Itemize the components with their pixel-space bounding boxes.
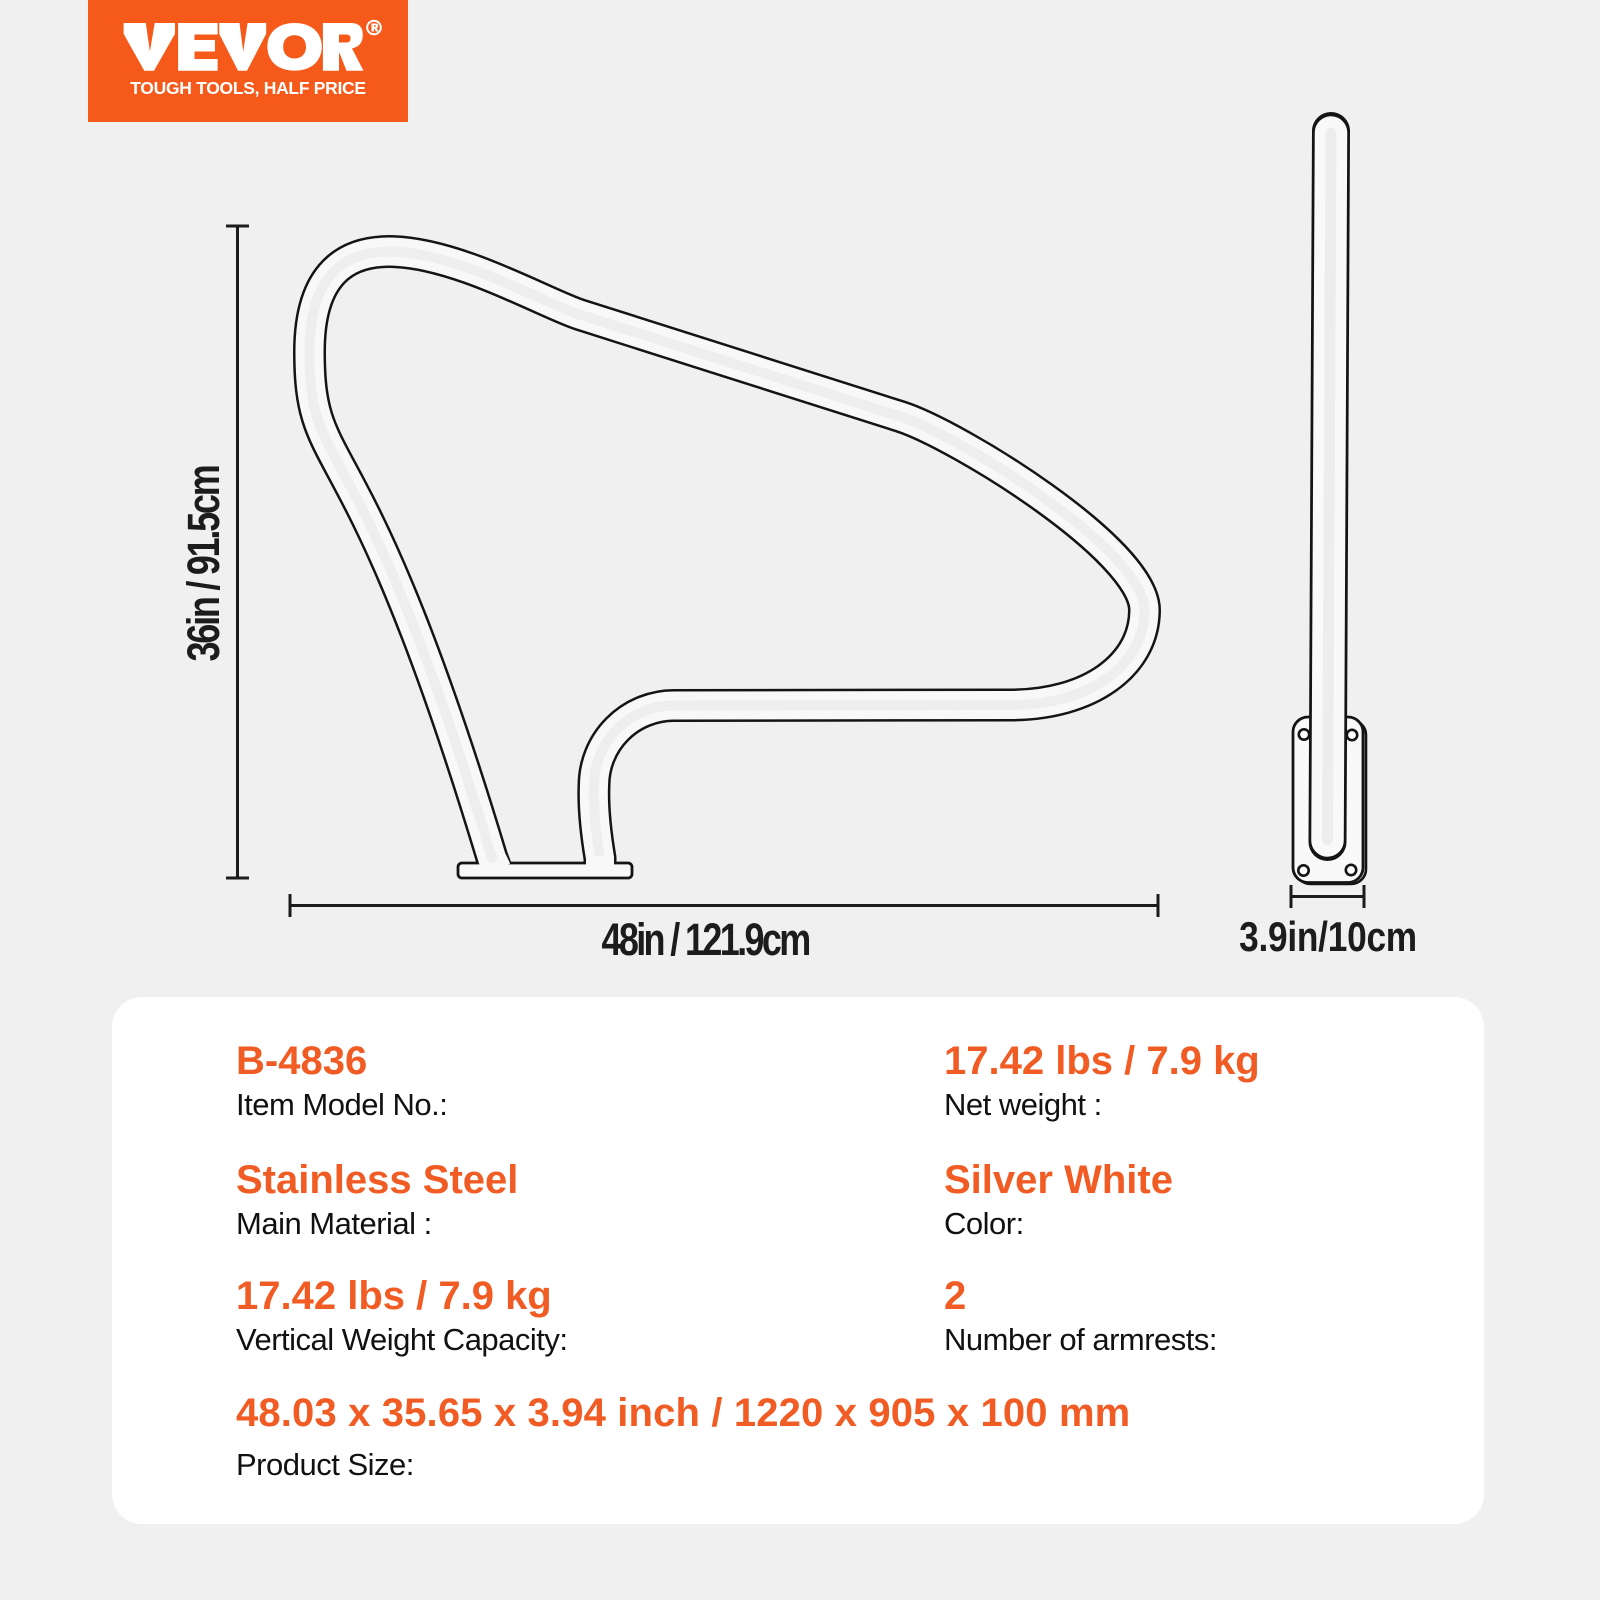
svg-text:36in / 91.5cm: 36in / 91.5cm: [178, 466, 229, 661]
svg-text:48in / 121.9cm: 48in / 121.9cm: [601, 914, 809, 965]
svg-text:3.9in/10cm: 3.9in/10cm: [1239, 914, 1417, 961]
